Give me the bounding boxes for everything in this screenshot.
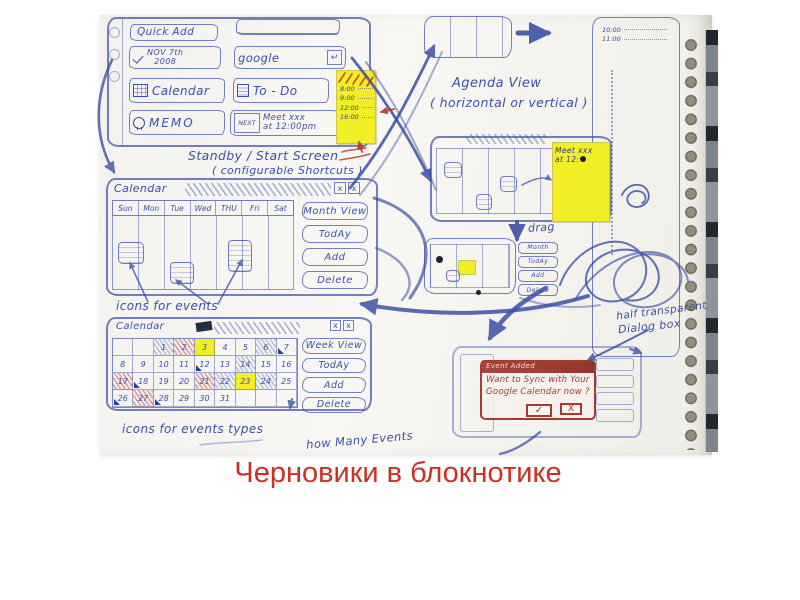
calendar-shortcut-sketch: Calendar	[129, 78, 225, 103]
event-note-sketch	[444, 162, 462, 178]
divider	[122, 18, 123, 145]
month-day-cell: 10	[154, 356, 174, 373]
event-note-sketch	[118, 242, 144, 264]
dialog-title: Event Added	[482, 362, 594, 373]
dialog-close-button: X	[560, 403, 582, 415]
month-day-cell: 28	[154, 390, 174, 407]
sketch-button: TodAy	[302, 225, 368, 243]
month-grid: 1234567891011121314151617181920212223242…	[112, 338, 298, 408]
sticky-time-row: 9:00	[337, 93, 375, 103]
month-view-buttons: Week ViewTodAyAddDelete	[302, 338, 366, 417]
mini-button: Month	[518, 242, 558, 254]
calendar-label: Calendar	[152, 84, 209, 98]
month-day-cell: 15	[256, 356, 276, 373]
slide: Quick Add NOV 7th 2008 google ↵ Calendar…	[0, 0, 800, 600]
check-icon: ✓	[535, 405, 543, 416]
date-field-sketch: NOV 7th 2008	[129, 46, 221, 69]
ink-dot	[436, 256, 443, 263]
meeting-line1: Meet xxx	[555, 146, 607, 155]
month-day-cell: 22	[215, 373, 235, 390]
month-day-cell: 25	[277, 373, 297, 390]
week-grid	[436, 148, 554, 214]
sketch-button: Delete	[302, 271, 368, 289]
month-day-cell: 30	[195, 390, 215, 407]
event-note-sketch	[446, 270, 460, 282]
tab-hatch	[466, 134, 546, 144]
calendar-icon	[133, 84, 148, 97]
date-line2: 2008	[154, 57, 176, 66]
mini-button: Delete	[518, 284, 558, 296]
event-note-sketch	[228, 240, 252, 272]
event-note-sketch	[500, 176, 517, 192]
dialog-body-text: Want to Sync with Your Google Calendar n…	[482, 373, 594, 400]
month-day-cell: 2	[174, 339, 194, 356]
week-view-buttons: Month ViewTodAyAddDelete	[302, 202, 368, 294]
month-day-cell: 6	[256, 339, 276, 356]
dialog-ok-button: ✓	[526, 404, 552, 417]
sticky-time-row: 16:00	[337, 112, 375, 122]
month-day-cell: 19	[154, 373, 174, 390]
month-day-cell: 8	[113, 356, 133, 373]
month-day-cell: 3	[195, 339, 215, 356]
month-day-cell	[277, 390, 297, 407]
event-added-dialog: Event Added Want to Sync with Your Googl…	[480, 360, 596, 420]
ring-doodle	[109, 27, 120, 38]
month-day-cell	[113, 339, 133, 356]
sticky-time-row: 12:00	[337, 102, 375, 112]
month-day-cell: 20	[174, 373, 194, 390]
meeting-line2: at 12:	[555, 155, 607, 164]
agenda-times: 10:0011:00	[593, 18, 673, 43]
agenda-horizontal-grid	[424, 16, 512, 58]
weekday-header: Wed	[191, 201, 217, 215]
month-day-cell: 13	[215, 356, 235, 373]
memo-shortcut-sketch: MEMO	[129, 110, 225, 135]
agenda-view-label-2: ( horizontal or vertical )	[430, 95, 588, 110]
notebook-spiral-edge	[705, 30, 718, 452]
mini-sticky-chip	[458, 260, 476, 275]
todo-list-icon	[237, 84, 249, 97]
meeting-sticky-note: Meet xxx at 12:	[552, 142, 610, 222]
binding-holes	[684, 36, 699, 450]
month-day-cell: 21	[195, 373, 215, 390]
titlebar-hatch	[214, 322, 300, 334]
return-key-icon: ↵	[327, 50, 342, 65]
slide-caption: Черновики в блокнотике	[0, 457, 796, 490]
mini-button: Add	[518, 270, 558, 282]
sketch-button: Delete	[302, 397, 366, 413]
x-icon: X	[568, 404, 574, 414]
next-event-line1: Meet xxx	[263, 113, 305, 123]
search-text: google	[238, 51, 279, 65]
icons-for-event-types-label: icons for events types	[122, 422, 263, 436]
month-day-cell: 1	[154, 339, 174, 356]
weekday-header: Mon	[139, 201, 165, 215]
month-day-cell	[133, 339, 153, 356]
month-day-cell: 14	[236, 356, 256, 373]
icons-for-events-label: icons for events	[116, 299, 218, 313]
weekday-header: Sun	[113, 201, 139, 215]
drag-label: drag	[528, 220, 556, 235]
month-day-cell: 4	[215, 339, 235, 356]
weekday-header: Sat	[268, 201, 293, 215]
event-note-sketch	[476, 194, 492, 210]
month-day-cell: 31	[215, 390, 235, 407]
month-day-cell: 5	[236, 339, 256, 356]
clipped-title-box	[236, 19, 340, 35]
agenda-time-row: 11:00	[599, 34, 669, 44]
start-screen-label-2: ( configurable Shortcuts )	[212, 164, 363, 177]
week-view-title: Calendar	[114, 182, 167, 195]
mini-button: TodAy	[518, 256, 558, 268]
sketch-button: Add	[302, 248, 368, 266]
close-box: x	[348, 182, 360, 194]
minimize-box: x	[330, 320, 341, 331]
next-event-line2: at 12:00pm	[263, 122, 316, 132]
start-screen-label-1: Standby / Start Screen	[188, 148, 338, 163]
close-box: x	[343, 320, 354, 331]
check-icon	[132, 52, 143, 63]
event-note-sketch	[170, 262, 194, 284]
month-day-cell: 26	[113, 390, 133, 407]
month-view-title: Calendar	[116, 321, 164, 332]
sticky-times: 8:009:0012:0016:00	[337, 83, 375, 121]
todo-shortcut-sketch: To - Do	[233, 78, 329, 103]
month-day-cell	[256, 390, 276, 407]
next-event-sketch: NEXT Meet xxx at 12:00pm	[230, 110, 340, 136]
weekday-header: Fri	[242, 201, 268, 215]
month-day-cell: 18	[133, 373, 153, 390]
month-day-cell	[236, 390, 256, 407]
memo-label: MEMO	[149, 116, 195, 130]
ink-dot	[476, 290, 481, 295]
month-day-cell: 7	[277, 339, 297, 356]
month-day-cell: 17	[113, 373, 133, 390]
month-day-cell: 9	[133, 356, 153, 373]
agenda-view-label-1: Agenda View	[452, 76, 541, 91]
bg-list-lines	[596, 358, 634, 422]
ring-doodle	[109, 71, 120, 82]
sketch-button: TodAy	[302, 358, 366, 374]
ink-blot	[580, 156, 586, 162]
search-box-sketch: google ↵	[234, 46, 346, 69]
sketch-button: Week View	[302, 338, 366, 354]
month-day-cell: 24	[256, 373, 276, 390]
month-day-cell: 12	[195, 356, 215, 373]
todo-label: To - Do	[253, 84, 298, 98]
month-day-cell: 11	[174, 356, 194, 373]
bulb-icon	[133, 117, 145, 129]
next-chip: NEXT	[234, 113, 260, 133]
sticky-time-row: 8:00	[337, 83, 375, 93]
minimize-box: x	[334, 182, 346, 194]
ring-doodle	[109, 49, 120, 60]
month-day-cell: 16	[277, 356, 297, 373]
weekday-headers: SunMonTueWedTHUFriSat	[112, 200, 294, 216]
sketch-button: Add	[302, 377, 366, 393]
weekday-header: Tue	[165, 201, 191, 215]
weekday-header: THU	[216, 201, 242, 215]
titlebar-hatch	[185, 183, 331, 196]
agenda-time-row: 10:00	[599, 24, 669, 34]
month-day-cell: 27	[133, 390, 153, 407]
sketch-button: Month View	[302, 202, 368, 220]
month-day-cell: 29	[174, 390, 194, 407]
month-day-cell: 23	[236, 373, 256, 390]
quick-add-button-sketch: Quick Add	[130, 24, 218, 41]
today-sticky-note: 8:009:0012:0016:00	[336, 70, 376, 144]
mini-view-buttons: MonthTodAyAddDelete	[518, 242, 558, 298]
